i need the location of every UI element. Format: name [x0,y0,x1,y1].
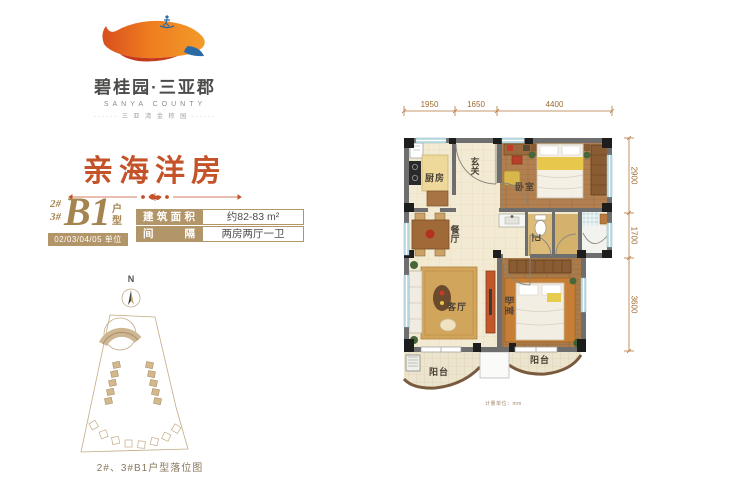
brand-tagline: ······ 三 亚 湾 金 棕 园 ······ [70,111,240,120]
dim-right-3600: 3600 [630,285,639,325]
site-plan-caption: 2#、3#B1户型落位图 [50,459,250,474]
table-row: 建筑面积 约82-83 m² [136,209,304,225]
room-label-balcony-left: 阳台 [429,365,449,378]
compass-north-label: N [122,274,140,284]
dim-right-2900: 2900 [630,156,639,196]
room-label-dining: 餐厅 [449,225,458,243]
table-row: 间隔 两房两厅一卫 [136,226,304,242]
dim-top-1650: 1650 [455,100,497,109]
spec-table: 建筑面积 约82-83 m² 间隔 两房两厅一卫 [136,209,304,243]
unit-building-2: 2# [50,198,61,210]
floor-plan: 1950 1650 4400 2900 1700 3600 厨房 玄关 卧室 餐… [385,95,650,425]
unit-type-label: 户型 [112,204,123,227]
unit-type-code: B1 [64,188,111,235]
unit-note: 计量单位：mm [485,400,555,407]
room-label-kitchen: 厨房 [425,171,445,184]
unit-info: 2# 3# B1 户型 02/03/04/05 单位 建筑面积 约82-83 m… [48,197,328,247]
brand-name: 碧桂园·三亚郡 [70,73,240,98]
unit-building-3: 3# [50,211,61,223]
dim-right-1700: 1700 [630,216,639,256]
spec-value-layout: 两房两厅一卫 [202,226,304,242]
dim-top-4400: 4400 [497,100,612,109]
site-plan-map [58,272,243,458]
brand-subtitle: SANYA COUNTY [70,101,240,108]
brand-block: 碧桂园·三亚郡 SANYA COUNTY ······ 三 亚 湾 金 棕 园 … [70,14,240,120]
tower-blocks-left [104,361,120,404]
bedroom2-furniture [505,260,583,348]
dim-top-1950: 1950 [404,100,455,109]
room-label-living: 客厅 [447,300,467,313]
unit-numbers-bar: 02/03/04/05 单位 [48,233,128,246]
floor-plan-drawing [385,95,650,425]
whale-logo-icon [90,14,220,66]
unit-type-block: 2# 3# B1 户型 02/03/04/05 单位 [48,197,128,247]
page-title: 亲海洋房 [55,146,255,190]
site-plan: N [58,272,243,458]
tower-blocks-right [145,361,161,404]
tower-blocks-bottom [89,420,181,448]
room-label-bedroom2: 卧室 [503,296,516,316]
room-label-balcony-right: 阳台 [530,353,550,366]
spec-value-area: 约82-83 m² [202,209,304,225]
room-label-bath: 卫 [530,233,543,243]
spec-label-area: 建筑面积 [136,209,202,225]
room-label-bedroom1: 卧室 [515,180,535,193]
room-label-foyer: 玄关 [469,157,478,175]
spec-label-layout: 间隔 [136,226,202,242]
